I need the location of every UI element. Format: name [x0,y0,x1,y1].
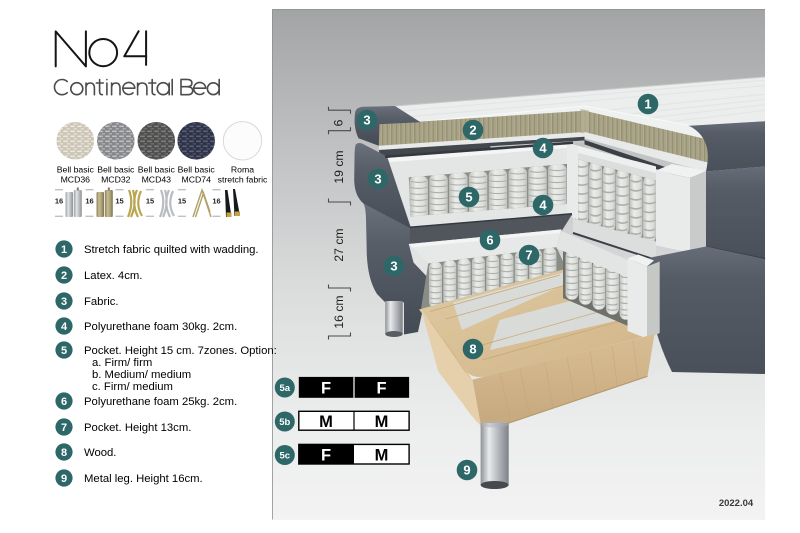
svg-text:1: 1 [61,244,67,256]
svg-text:a. Firm/ firm: a. Firm/ firm [92,357,152,369]
svg-text:9: 9 [463,463,470,478]
svg-text:2: 2 [61,270,67,282]
svg-text:MCD74: MCD74 [181,175,211,185]
svg-text:6: 6 [61,396,67,408]
svg-text:Latex. 4cm.: Latex. 4cm. [84,270,142,282]
svg-text:Bell basic: Bell basic [57,165,95,175]
svg-text:6: 6 [332,119,346,126]
svg-text:2: 2 [469,123,476,138]
svg-text:15: 15 [115,197,123,206]
svg-text:16: 16 [55,197,63,206]
svg-text:15: 15 [146,197,154,206]
svg-text:4: 4 [539,198,547,213]
svg-text:Pocket. Height 13cm.: Pocket. Height 13cm. [84,422,191,434]
svg-text:Pocket. Height 15 cm. 7zones.: Pocket. Height 15 cm. 7zones. Option: [84,345,277,357]
svg-text:5c: 5c [280,451,291,462]
svg-text:4: 4 [539,141,547,156]
svg-text:c. Firm/ medium: c. Firm/ medium [92,381,173,393]
svg-text:MCD43: MCD43 [142,175,172,185]
svg-text:5: 5 [465,190,472,205]
svg-text:Bell basic: Bell basic [138,165,176,175]
svg-text:MCD36: MCD36 [61,175,91,185]
svg-text:1: 1 [644,97,651,112]
svg-text:4: 4 [61,321,68,333]
svg-text:M: M [375,413,389,431]
svg-text:b. Medium/ medium: b. Medium/ medium [92,369,191,381]
svg-text:Bell basic: Bell basic [97,165,135,175]
svg-text:F: F [321,380,331,398]
svg-text:5a: 5a [280,383,291,394]
svg-text:6: 6 [486,233,493,248]
svg-text:stretch fabric: stretch fabric [218,175,268,185]
svg-text:19 cm: 19 cm [332,150,346,183]
svg-text:7: 7 [61,422,67,434]
svg-text:Fabric.: Fabric. [84,296,119,308]
svg-text:7: 7 [525,248,532,263]
svg-text:Polyurethane foam 30kg. 2cm.: Polyurethane foam 30kg. 2cm. [84,321,237,333]
svg-text:16: 16 [85,197,93,206]
svg-text:5: 5 [61,345,67,357]
svg-text:2022.04: 2022.04 [719,498,754,509]
svg-text:16: 16 [212,197,220,206]
svg-text:3: 3 [374,172,381,187]
svg-text:F: F [376,380,386,398]
svg-text:3: 3 [61,296,67,308]
svg-text:Bell basic: Bell basic [178,165,216,175]
svg-text:Wood.: Wood. [84,447,116,459]
svg-text:Stretch fabric quilted with wa: Stretch fabric quilted with wadding. [84,244,259,256]
svg-text:5b: 5b [279,417,290,428]
svg-text:15: 15 [178,197,186,206]
svg-text:MCD32: MCD32 [101,175,131,185]
svg-text:Metal leg. Height 16cm.: Metal leg. Height 16cm. [84,473,203,485]
svg-text:16 cm: 16 cm [332,295,346,328]
svg-text:9: 9 [61,473,67,485]
svg-text:M: M [375,447,389,465]
svg-text:3: 3 [390,259,397,274]
svg-text:M: M [319,413,333,431]
svg-text:8: 8 [61,447,67,459]
svg-text:8: 8 [469,342,476,357]
svg-text:Roma: Roma [231,165,254,175]
svg-text:3: 3 [363,113,370,128]
svg-text:F: F [321,447,331,465]
svg-text:Polyurethane foam 25kg. 2cm.: Polyurethane foam 25kg. 2cm. [84,396,237,408]
svg-text:27 cm: 27 cm [332,228,346,261]
